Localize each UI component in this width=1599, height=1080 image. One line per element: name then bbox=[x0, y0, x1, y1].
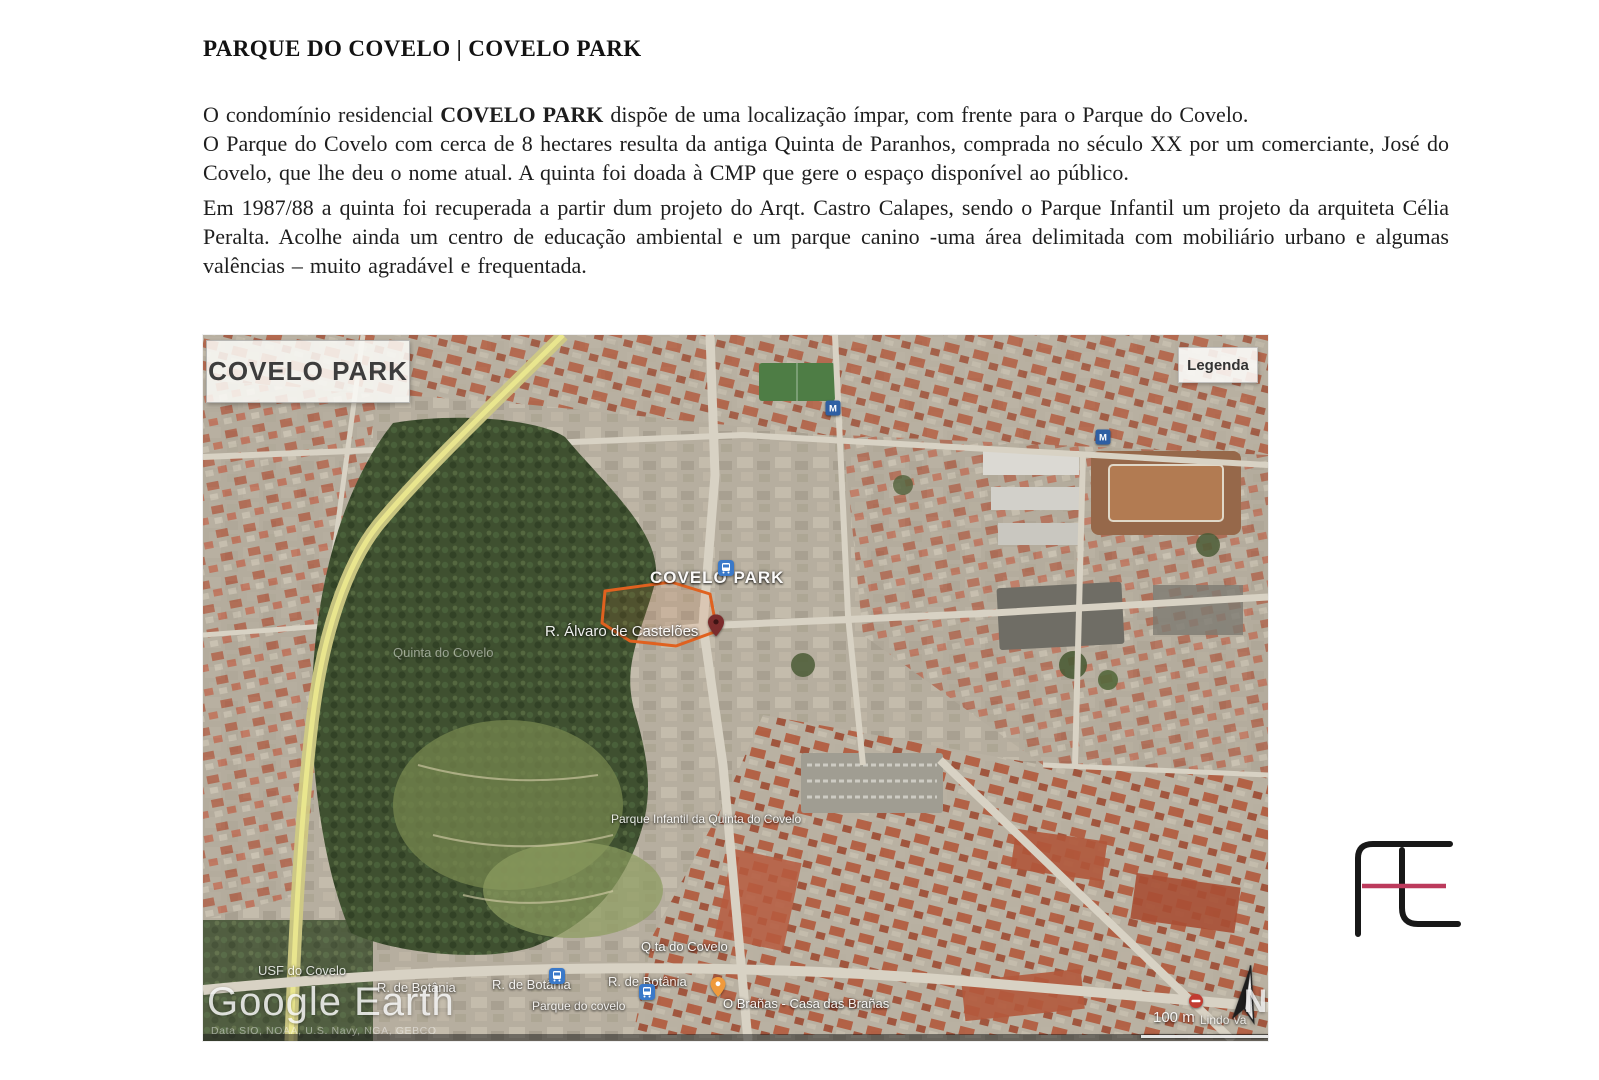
map-title-overlay: COVELO PARK bbox=[206, 340, 410, 403]
body-text: O condomínio residencial COVELO PARK dis… bbox=[203, 100, 1449, 280]
google-earth-watermark: Google Earth bbox=[207, 980, 455, 1025]
bus-icon bbox=[718, 560, 734, 576]
bus-icon bbox=[549, 968, 565, 984]
noentry-icon bbox=[1189, 994, 1203, 1008]
svg-text:M: M bbox=[829, 404, 837, 415]
bus-icon bbox=[639, 984, 655, 1000]
legend-label: Legenda bbox=[1187, 357, 1249, 374]
project-name-bold: COVELO PARK bbox=[440, 102, 603, 127]
map-label-branas: O Brañas - Casa das Brañas bbox=[723, 996, 889, 1011]
document-page: PARQUE DO COVELO | COVELO PARK O condomí… bbox=[0, 0, 1599, 1080]
svg-text:M: M bbox=[1099, 433, 1107, 444]
paragraph-renovation: Em 1987/88 a quinta foi recuperada a par… bbox=[203, 193, 1449, 280]
aerial-map-figure: COVELO PARK Legenda COVELO PARKR. Álvaro… bbox=[203, 335, 1268, 1041]
company-logo-monogram bbox=[1346, 834, 1462, 938]
map-label-parque-infantil: Parque Infantil da Quinta do Covelo bbox=[611, 812, 801, 826]
metro-icon: M bbox=[826, 401, 841, 416]
paragraph-intro: O condomínio residencial COVELO PARK dis… bbox=[203, 100, 1449, 129]
scale-bar bbox=[1141, 1035, 1268, 1038]
north-label: N bbox=[1244, 983, 1267, 1020]
paragraph-history: O Parque do Covelo com cerca de 8 hectar… bbox=[203, 129, 1449, 187]
map-attribution: Data SIO, NOAA, U.S. Navy, NGA, GEBCO bbox=[211, 1025, 437, 1037]
paragraph-intro-end: dispõe de uma localização ímpar, com fre… bbox=[603, 102, 1248, 127]
map-label-qta-do-covelo: Q.ta do Covelo bbox=[641, 939, 728, 954]
map-label-usf-do-covelo: USF do Covelo bbox=[258, 963, 346, 978]
legend-button: Legenda bbox=[1178, 347, 1258, 383]
map-label-street-alvaro: R. Álvaro de Castelões bbox=[545, 623, 698, 640]
page-title: PARQUE DO COVELO | COVELO PARK bbox=[203, 36, 642, 62]
map-label-parque-covelo: Parque do covelo bbox=[532, 999, 625, 1013]
balloon-icon bbox=[711, 977, 726, 997]
paragraph-intro-start: O condomínio residencial bbox=[203, 102, 440, 127]
metro-icon: M bbox=[1096, 430, 1111, 445]
scale-label: 100 m bbox=[1153, 1009, 1195, 1026]
map-label-quinta-do-covelo: Quinta do Covelo bbox=[393, 645, 493, 660]
company-logo bbox=[1346, 834, 1462, 938]
map-title-text: COVELO PARK bbox=[208, 356, 408, 387]
pin-icon bbox=[708, 614, 724, 636]
